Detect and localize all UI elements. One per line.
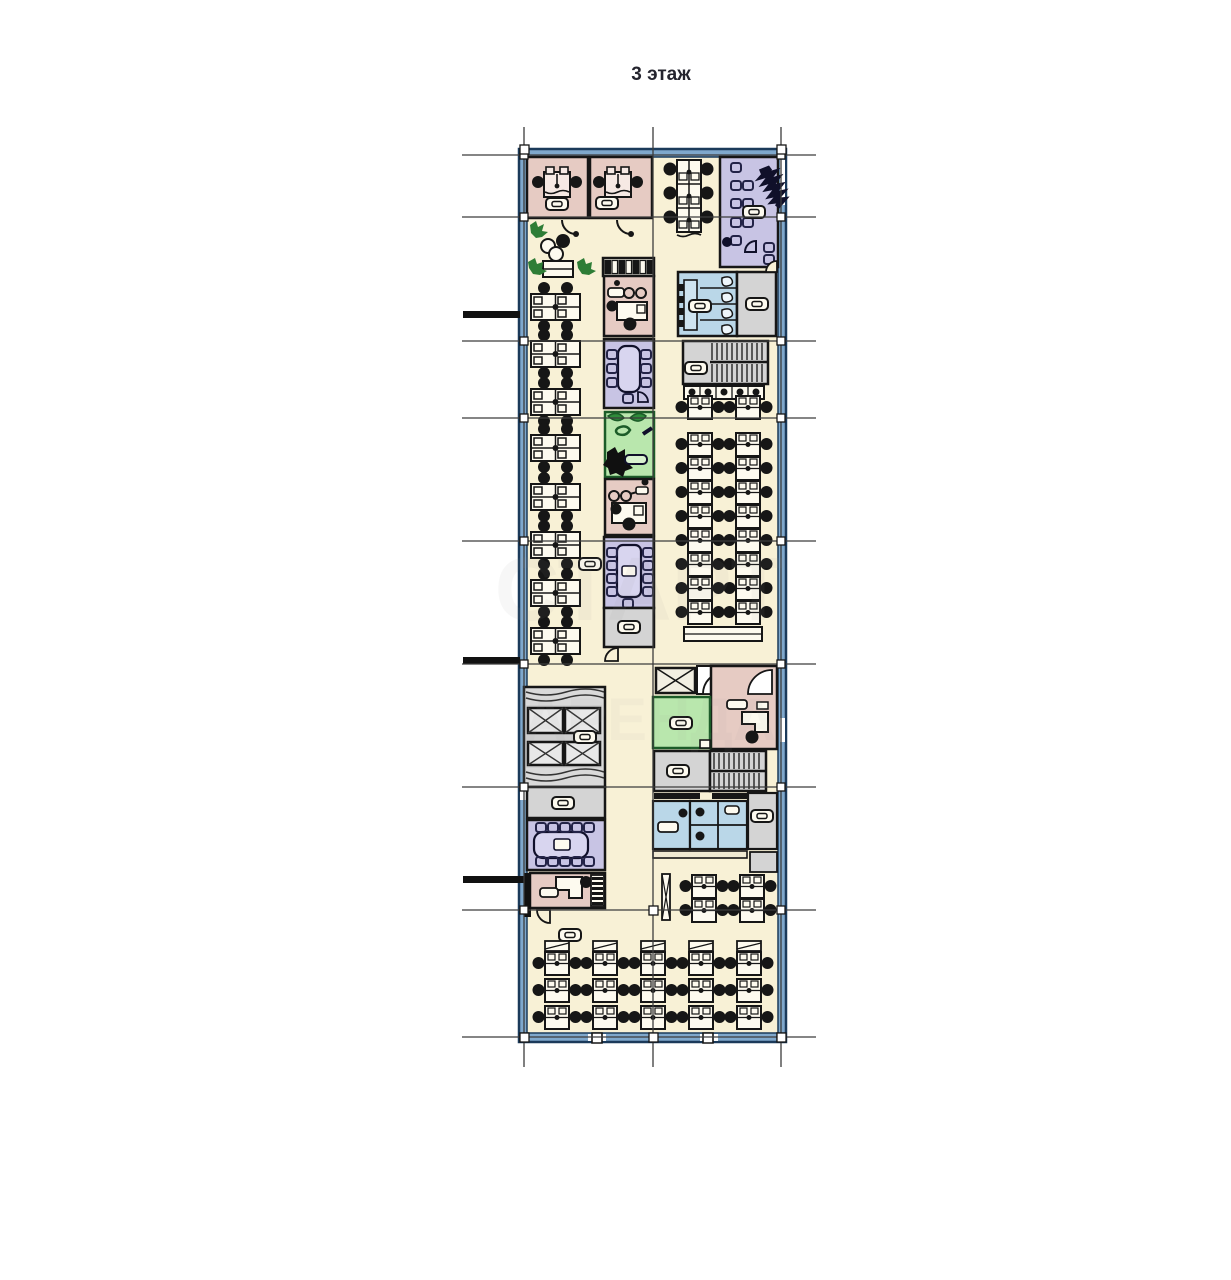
svg-text:3 этаж: 3 этаж: [631, 64, 691, 85]
svg-text:СТАРТ: СТАРТ: [495, 540, 786, 640]
svg-text:АРЕНДА: АРЕНДА: [524, 686, 777, 753]
